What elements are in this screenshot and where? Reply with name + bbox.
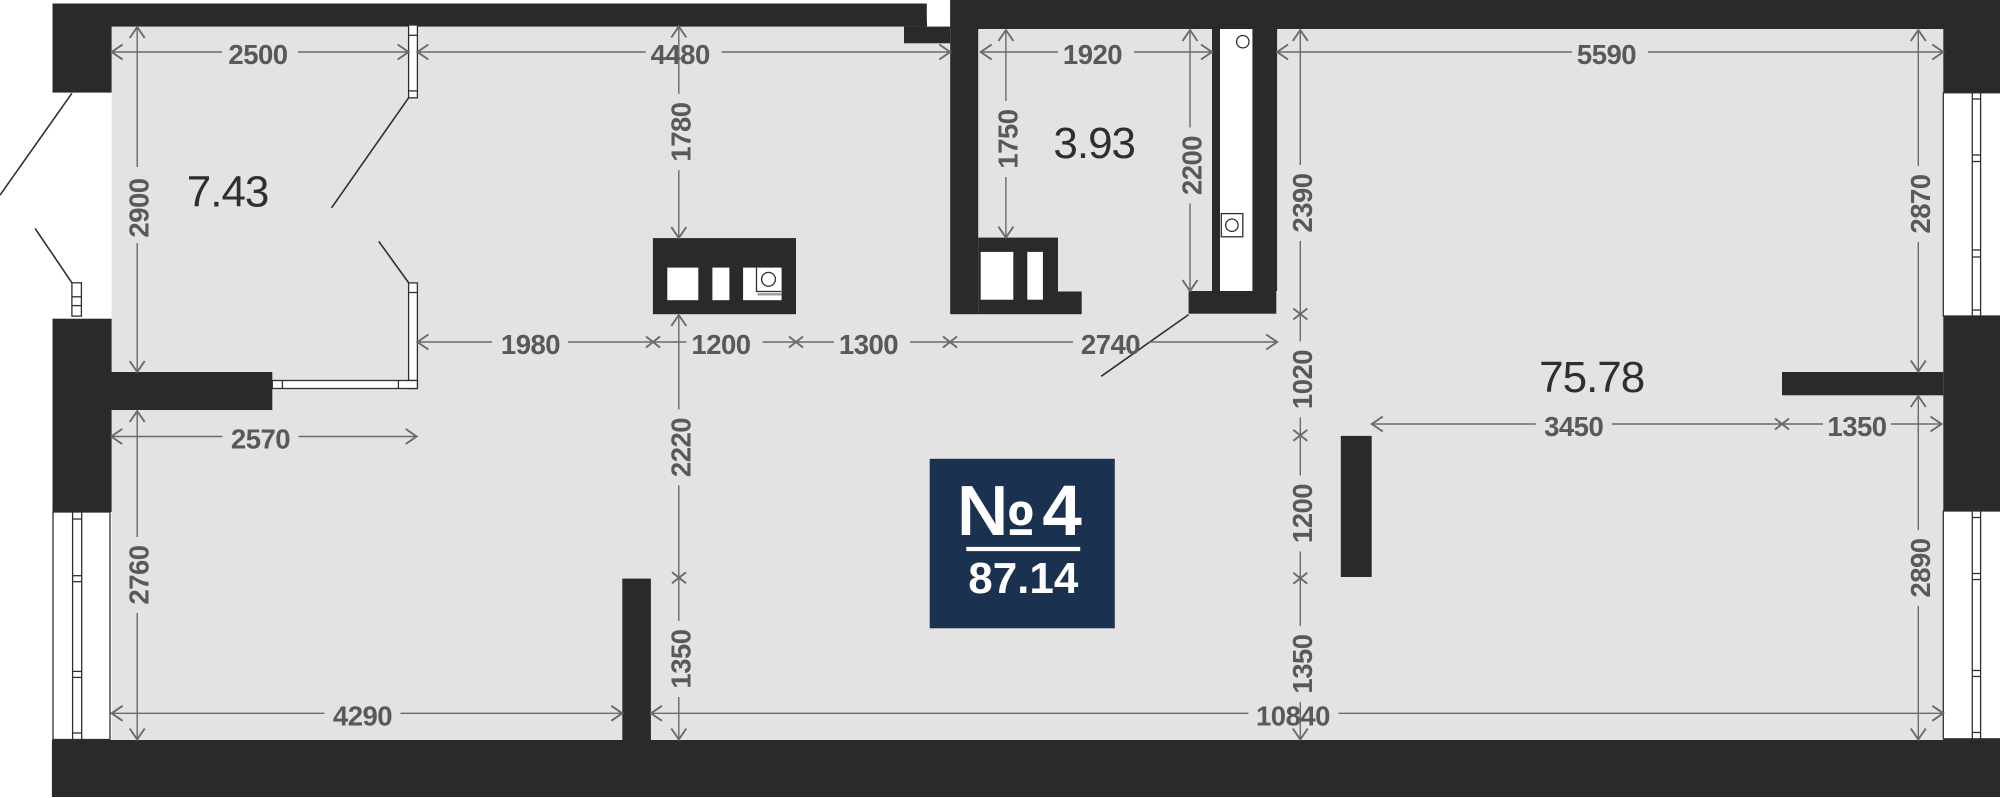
svg-text:1020: 1020 [1287,350,1318,409]
svg-text:10840: 10840 [1256,700,1330,731]
svg-text:2900: 2900 [124,178,155,237]
svg-text:2390: 2390 [1287,173,1318,232]
svg-text:2500: 2500 [228,39,287,70]
svg-text:75.78: 75.78 [1539,353,1644,402]
svg-text:2890: 2890 [1905,538,1936,597]
svg-text:1780: 1780 [665,102,696,161]
svg-text:№4: №4 [957,472,1088,551]
svg-text:2740: 2740 [1081,329,1140,360]
svg-text:87.14: 87.14 [968,554,1079,603]
svg-text:1200: 1200 [691,329,750,360]
svg-text:1980: 1980 [501,329,560,360]
svg-text:2870: 2870 [1905,174,1936,233]
svg-text:4480: 4480 [651,39,710,70]
svg-text:3.93: 3.93 [1053,119,1135,168]
svg-text:3450: 3450 [1544,411,1603,442]
svg-text:1920: 1920 [1063,39,1122,70]
svg-text:1300: 1300 [839,329,898,360]
svg-text:1350: 1350 [1287,634,1318,693]
svg-text:4290: 4290 [333,700,392,731]
svg-text:5590: 5590 [1577,39,1636,70]
svg-text:1200: 1200 [1287,484,1318,543]
svg-text:2570: 2570 [231,424,290,455]
svg-text:2760: 2760 [124,545,155,604]
svg-text:1350: 1350 [665,629,696,688]
svg-text:1350: 1350 [1827,411,1886,442]
svg-text:2200: 2200 [1177,136,1208,195]
svg-text:1750: 1750 [992,109,1023,168]
svg-text:2220: 2220 [665,418,696,477]
svg-text:7.43: 7.43 [187,167,269,216]
